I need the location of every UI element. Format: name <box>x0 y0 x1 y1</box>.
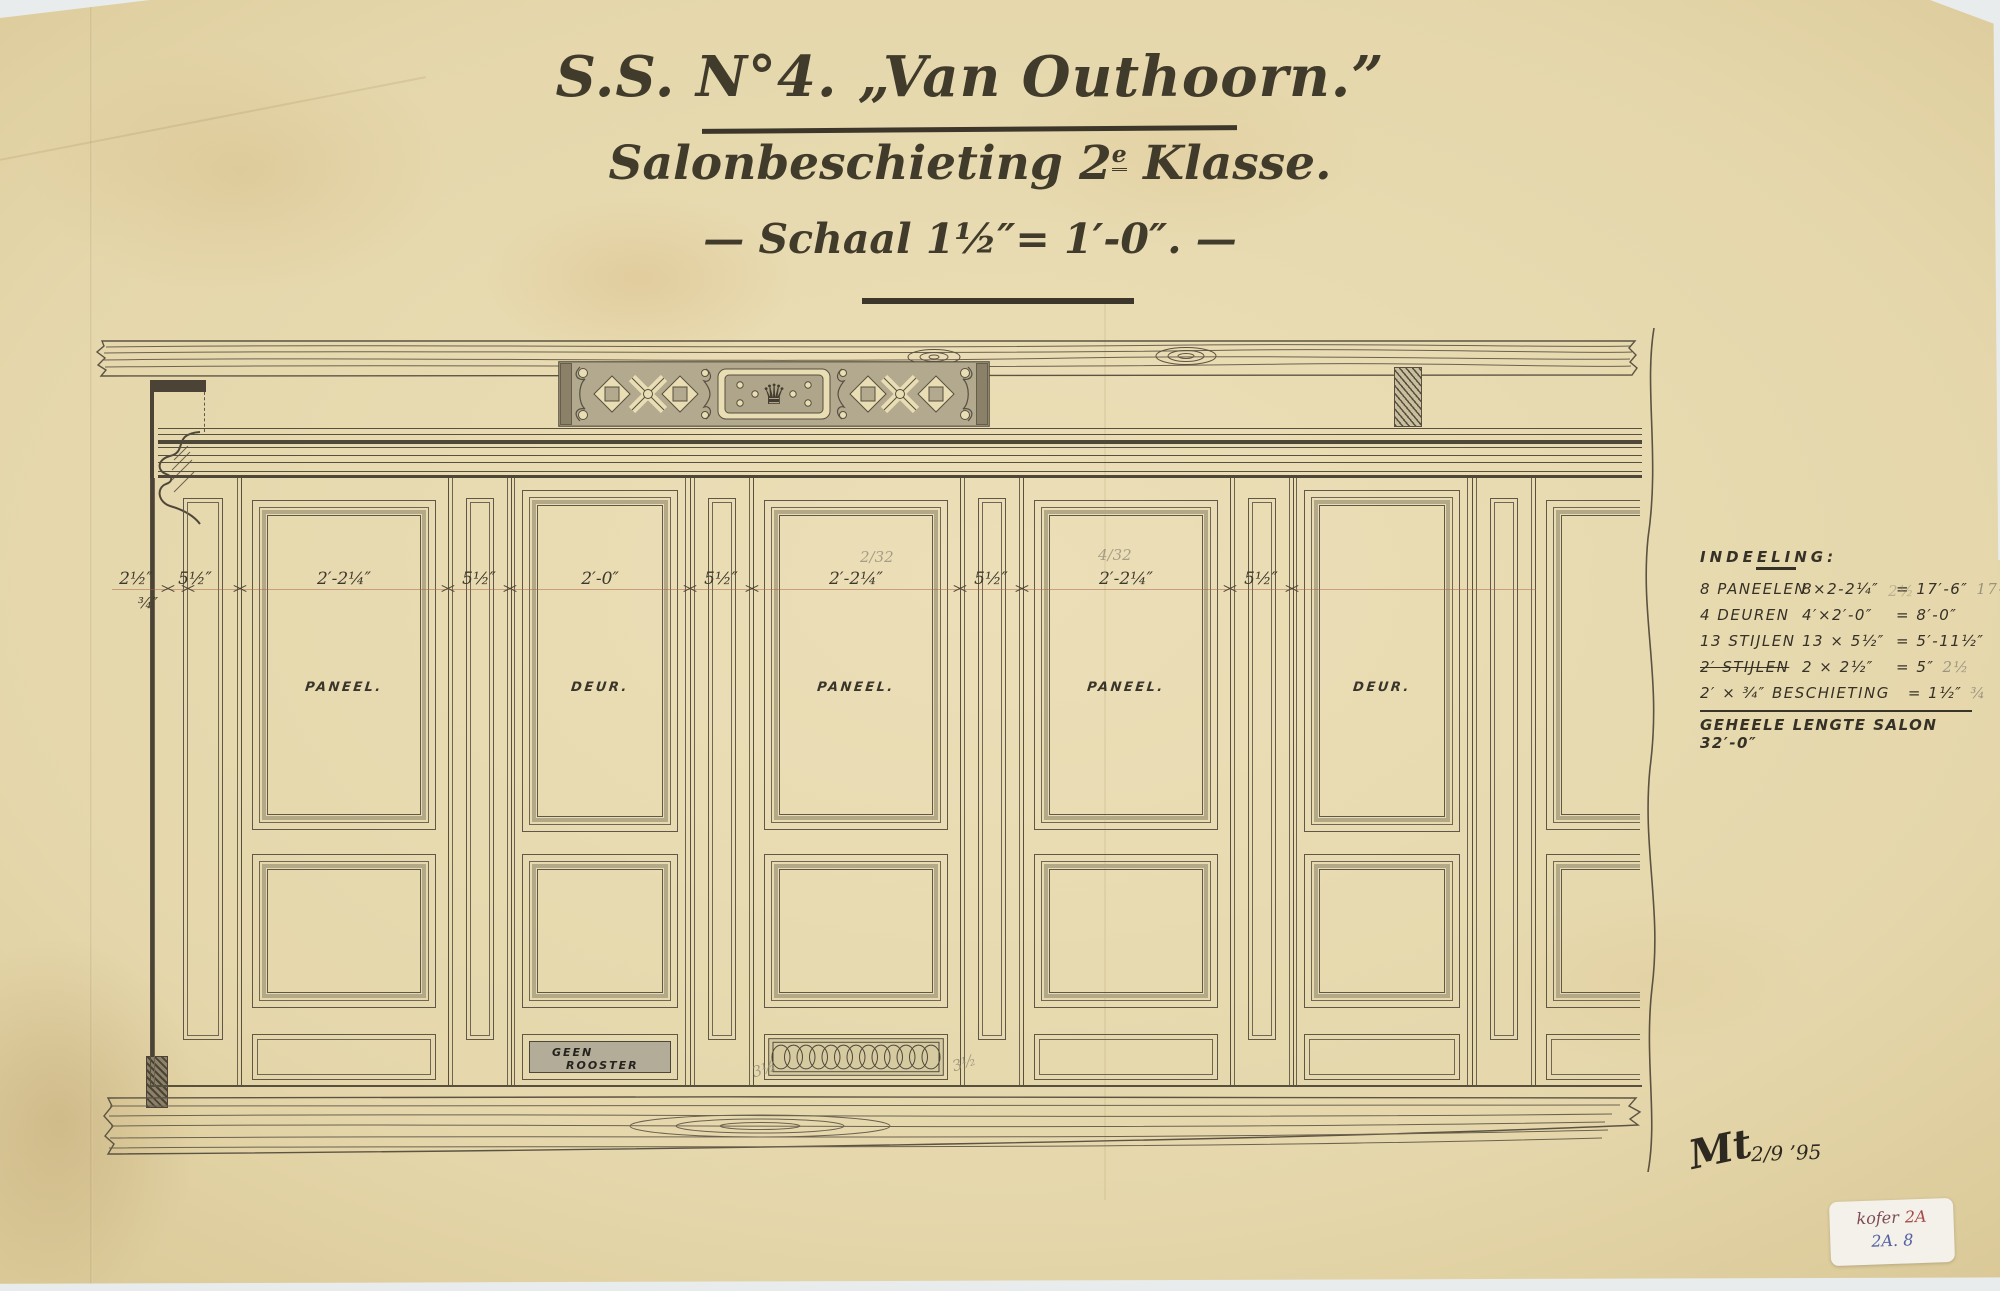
legend-calc: 13 × 5½″ <box>1802 632 1896 650</box>
upper-panel <box>1546 500 1640 830</box>
legend-total: GEHEELE LENGTE SALON 32′-0″ <box>1700 710 1972 752</box>
pencil-ghost: ¾ <box>1970 684 1986 702</box>
lower-panel <box>1304 854 1460 1008</box>
plinth-panel <box>1304 1034 1460 1080</box>
pencil-note: 4/32 <box>1098 546 1132 564</box>
plinth-geen-rooster: GEEN ROOSTER <box>522 1034 678 1080</box>
legend-item: 2′ × ¾″ BESCHIETING <box>1700 684 1890 702</box>
pencil-note: 2/32 <box>860 548 894 566</box>
door-label: DEUR. <box>509 680 691 695</box>
plinth-grille <box>764 1034 948 1080</box>
legend-result: = 8′-0″ <box>1896 606 1957 624</box>
lower-panel <box>522 854 678 1008</box>
sticker-line2: 2A. 8 <box>1830 1229 1955 1252</box>
left-section-top-block <box>150 380 206 392</box>
bay-dimension: 2′-0″ <box>540 569 660 589</box>
crown-icon: ♛ <box>761 378 786 411</box>
skirting-line <box>150 1085 1642 1087</box>
upper-panel <box>764 500 948 830</box>
lower-panel <box>1546 854 1640 1008</box>
stile <box>1472 478 1536 1085</box>
dimension-arrow-icon <box>233 582 247 596</box>
geen-rooster-note: GEEN ROOSTER <box>529 1041 671 1073</box>
legend-heading-underline <box>1756 567 1796 570</box>
note-line2: ROOSTER <box>566 1059 639 1072</box>
legend-calc: 4′×2′-0″ <box>1802 606 1896 624</box>
lower-panel <box>764 854 948 1008</box>
dimension-arrow-icon <box>953 582 967 596</box>
sticker-word: kofer <box>1856 1208 1899 1228</box>
stile-dimension: 5½″ <box>967 569 1015 589</box>
dimension-arrow-icon <box>683 582 697 596</box>
pencil-ghost: 2½ <box>1942 658 1969 676</box>
cornice-molding <box>158 428 1642 478</box>
bay-dimension: 2′-2¼″ <box>1066 569 1186 589</box>
legend-row: 2′ × ¾″ BESCHIETING = 1½″ ¾ <box>1700 684 2000 702</box>
bay-partial <box>1534 478 1640 1085</box>
stile-dimension: 5½″ <box>697 569 745 589</box>
note-line1: GEEN <box>552 1046 593 1059</box>
sticker-code: 2A <box>1904 1207 1926 1227</box>
drawing-title: S.S. N°4. „Van Outhoorn.” <box>480 44 1460 110</box>
legend-calc: 8×2-2¼″ <box>1802 580 1896 598</box>
upper-panel <box>1304 490 1460 832</box>
dimension-arrow-icon <box>745 582 759 596</box>
legend-item: 4 DEUREN <box>1700 606 1802 624</box>
archive-sticker: kofer2A 2A. 8 <box>1829 1198 1955 1266</box>
scale-note: — Schaal 1½″= 1′-0″. — <box>480 215 1460 263</box>
scale-underline <box>862 298 1134 304</box>
upper-panel <box>522 490 678 832</box>
legend-row: 13 STIJLEN 13 × 5½″ = 5′-11½″ <box>1700 632 2000 650</box>
panel-label: PANEEL. <box>751 680 961 695</box>
legend-item: 2′ STIJLEN <box>1700 658 1802 676</box>
plinth-panel <box>1546 1034 1640 1080</box>
lower-panel <box>252 854 436 1008</box>
legend-row: 4 DEUREN 4′×2′-0″ = 8′-0″ <box>1700 606 2000 624</box>
drawing-scan: S.S. N°4. „Van Outhoorn.” Salonbeschieti… <box>0 0 2000 1291</box>
subtitle-superscript: e <box>1112 140 1127 171</box>
legend-result: = 5′-11½″ <box>1896 632 1984 650</box>
legend-result: = 5″ <box>1896 658 1934 676</box>
panel-label: PANEEL. <box>239 680 449 695</box>
legend-heading: INDEELING: <box>1700 548 2000 566</box>
torn-edge-line <box>1632 328 1672 1172</box>
dimension-line <box>112 589 1536 590</box>
sticker-line1: kofer2A <box>1829 1206 1954 1229</box>
edge-dimension: 2½″ <box>114 569 158 589</box>
legend-row: 2′ STIJLEN 2 × 2½″ = 5″ 2½ <box>1700 658 2000 676</box>
plinth-panel <box>252 1034 436 1080</box>
title-block: S.S. N°4. „Van Outhoorn.” Salonbeschieti… <box>480 44 1460 263</box>
dimension-arrow-icon <box>503 582 517 596</box>
upper-panel <box>252 500 436 830</box>
pencil-ghost: 2½ <box>1888 582 1915 600</box>
stile-dimension: 5½″ <box>455 569 503 589</box>
legend-indeeling: INDEELING: 2½ 8 PANEELEN 8×2-2¼″ = 17′-6… <box>1700 548 2000 752</box>
ventilation-grille-guilloche <box>768 1038 944 1076</box>
wood-knot-icon <box>1156 348 1216 365</box>
stile-dimension: 5½″ <box>171 569 219 589</box>
plinth-panel <box>1034 1034 1218 1080</box>
legend-item: 8 PANEELEN <box>1700 580 1802 598</box>
pencil-ghost: 17-3¼ <box>1976 580 2000 598</box>
legend-row: 8 PANEELEN 8×2-2¼″ = 17′-6″ 17-3¼ <box>1700 580 2000 598</box>
bay-deur-2: DEUR. <box>1292 478 1472 1085</box>
lower-panel <box>1034 854 1218 1008</box>
panel-label: PANEEL. <box>1021 680 1231 695</box>
subtitle-text-2: Klasse. <box>1127 136 1332 191</box>
dimension-arrow-icon <box>1015 582 1029 596</box>
legend-item: 13 STIJLEN <box>1700 632 1802 650</box>
door-label: DEUR. <box>1291 680 1473 695</box>
frieze-fretwork-ornament: ♛ <box>558 361 990 427</box>
bay-dimension: 2′-2¼″ <box>796 569 916 589</box>
legend-calc: 2 × 2½″ <box>1802 658 1896 676</box>
dimension-arrow-icon <box>1223 582 1237 596</box>
drawing-subtitle: Salonbeschieting 2e Klasse. <box>480 136 1460 191</box>
stile-dimension: 5½″ <box>1237 569 1285 589</box>
edge-dimension: ¾″ <box>130 594 166 612</box>
dimension-arrow-icon <box>1285 582 1299 596</box>
frieze-section-hatch <box>1394 367 1422 427</box>
left-section-dashed-line <box>204 392 205 432</box>
legend-result: = 1½″ <box>1908 684 1963 702</box>
bay-dimension: 2′-2¼″ <box>284 569 404 589</box>
signature-date: 2/9 ’95 <box>1750 1140 1821 1166</box>
floor-plank-woodgrain <box>100 1092 1645 1164</box>
subtitle-text: Salonbeschieting 2 <box>609 136 1112 191</box>
dimension-arrow-icon <box>441 582 455 596</box>
